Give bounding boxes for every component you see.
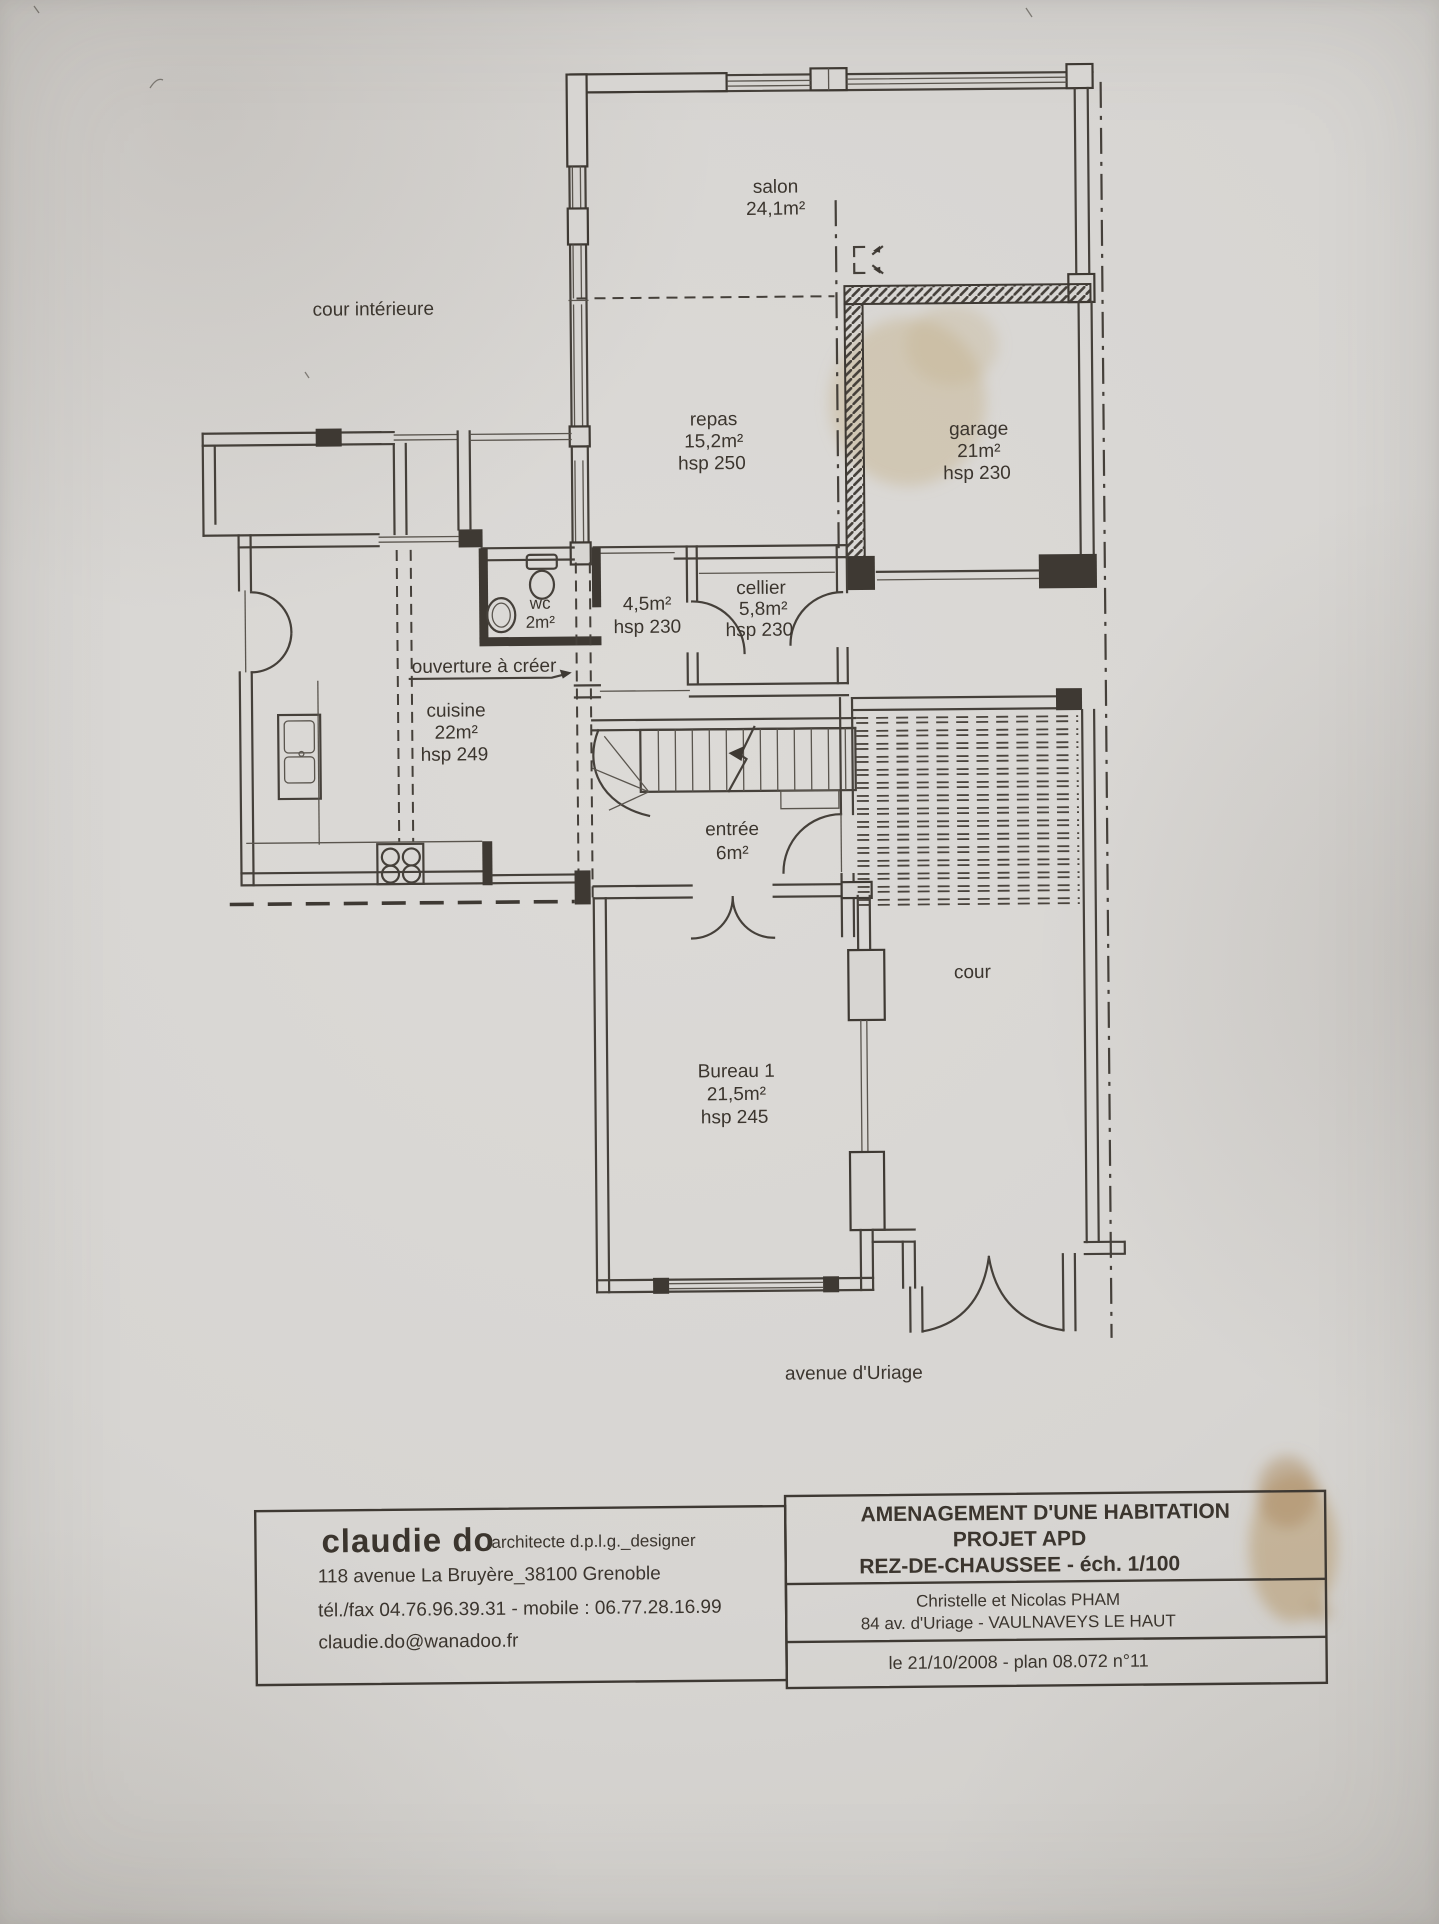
scanned-floor-plan-page: salon 24,1m² repas 15,2m² hsp 250 garage… xyxy=(0,0,1439,1924)
label-degagement-area: 4,5m² xyxy=(623,594,672,615)
label-cuisine-name: cuisine xyxy=(426,700,485,722)
label-ouverture: ouverture à créer xyxy=(412,656,558,678)
cour-boundary-dashed xyxy=(230,901,575,904)
entree-door-arc xyxy=(783,814,842,873)
label-repas-name: repas xyxy=(690,409,738,430)
cour-terrace xyxy=(852,688,1126,1332)
project-title-line3: REZ-DE-CHAUSSEE - éch. 1/100 xyxy=(859,1552,1180,1578)
toilet-icon xyxy=(527,555,557,569)
client-line2: 84 av. d'Uriage - VAULNAVEYS LE HAUT xyxy=(861,1611,1176,1633)
label-garage-hsp: hsp 230 xyxy=(943,463,1011,485)
architect-name: claudie do xyxy=(321,1521,495,1560)
ouverture-dashed-wall xyxy=(576,562,593,897)
gate-double-arc xyxy=(922,1256,1064,1331)
label-cellier-hsp: hsp 230 xyxy=(725,620,793,642)
label-bureau-area: 21,5m² xyxy=(707,1084,766,1106)
label-bureau-name: Bureau 1 xyxy=(698,1061,775,1083)
label-cellier-name: cellier xyxy=(736,578,786,599)
section-marker-icon xyxy=(854,246,882,274)
label-bureau-hsp: hsp 245 xyxy=(701,1107,769,1129)
label-avenue: avenue d'Uriage xyxy=(785,1362,923,1384)
date-plan-number: le 21/10/2008 - plan 08.072 n°11 xyxy=(889,1651,1149,1673)
label-wc-name: wc xyxy=(529,594,551,613)
scan-marks xyxy=(34,6,1032,378)
label-cour: cour xyxy=(954,962,992,983)
walls-salon-repas xyxy=(566,64,1096,565)
label-garage-name: garage xyxy=(949,419,1008,441)
label-entree-area: 6m² xyxy=(716,843,749,864)
label-repas-hsp: hsp 250 xyxy=(678,453,746,475)
kitchen-sink-icon xyxy=(278,715,321,799)
floor-plan-drawing: salon 24,1m² repas 15,2m² hsp 250 garage… xyxy=(0,0,1439,1924)
label-salon-name: salon xyxy=(753,177,799,198)
label-cellier-area: 5,8m² xyxy=(739,599,788,620)
client-line1: Christelle et Nicolas PHAM xyxy=(916,1590,1120,1611)
project-title-line1: AMENAGEMENT D'UNE HABITATION xyxy=(860,1500,1230,1527)
label-cour-interieure: cour intérieure xyxy=(312,299,434,321)
staircase xyxy=(592,718,856,816)
stove-icon xyxy=(377,844,423,884)
project-title-line2: PROJET APD xyxy=(953,1527,1087,1551)
cuisine-double-door-arcs xyxy=(251,592,292,672)
bureau-double-door-arcs xyxy=(692,897,774,939)
cellier-right-door-arc xyxy=(790,592,842,644)
title-block: claudie do architecte d.p.l.g._designer … xyxy=(255,1491,1327,1693)
architect-address: 118 avenue La Bruyère_38100 Grenoble xyxy=(318,1563,661,1587)
label-garage-area: 21m² xyxy=(957,441,1000,462)
architect-phone: tél./fax 04.76.96.39.31 - mobile : 06.77… xyxy=(318,1597,722,1622)
label-wc-area: 2m² xyxy=(526,613,556,632)
label-repas-area: 15,2m² xyxy=(684,431,743,453)
label-degagement-hsp: hsp 230 xyxy=(613,617,681,639)
label-cuisine-hsp: hsp 249 xyxy=(421,744,489,766)
architect-title: architecte d.p.l.g._designer xyxy=(491,1531,696,1552)
property-line xyxy=(1101,82,1112,1338)
plan-group: salon 24,1m² repas 15,2m² hsp 250 garage… xyxy=(199,64,1125,1390)
stair-direction-arrow xyxy=(728,746,744,761)
label-entree-name: entrée xyxy=(705,819,759,840)
label-salon-area: 24,1m² xyxy=(746,198,805,220)
architect-email: claudie.do@wanadoo.fr xyxy=(318,1631,519,1654)
label-cuisine-area: 22m² xyxy=(435,722,478,743)
